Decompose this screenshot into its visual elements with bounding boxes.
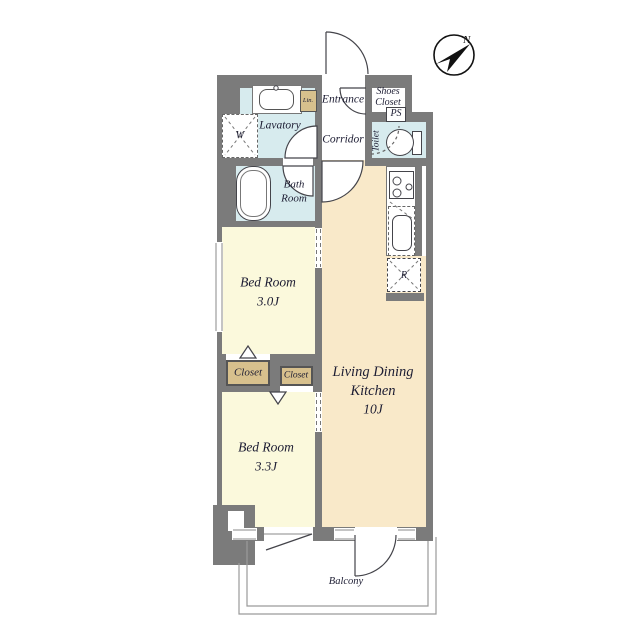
window-bottom-c <box>397 528 416 540</box>
label-fridge: R <box>401 271 407 282</box>
window-bottom-a <box>232 528 257 540</box>
label-bath-1: Bath <box>284 180 305 191</box>
sliding-door-bedroom1 <box>315 228 322 268</box>
label-bedroom1-name: Bed Room <box>240 275 296 289</box>
label-bedroom2-size: 3.3J <box>255 460 277 473</box>
wall-right-outer <box>426 112 433 541</box>
closet-right-opening <box>280 386 313 392</box>
label-corridor: Corridor <box>322 134 364 146</box>
label-ps: PS <box>390 109 401 119</box>
window-bottom-b <box>334 528 355 540</box>
label-lavatory: Lavatory <box>259 120 301 132</box>
window-left <box>215 242 223 332</box>
sliding-door-bedroom2 <box>315 392 322 432</box>
stove <box>389 171 414 199</box>
balcony-door-ldk-opening <box>355 527 397 541</box>
floor-plan: N Entrance Shoes Closet PS Corridor Toil… <box>0 0 640 640</box>
label-ldk-1: Living Dining <box>333 365 414 380</box>
compass-north-label: N <box>462 34 471 46</box>
room-bedroom-3-0 <box>222 227 315 354</box>
label-bath-2: Room <box>281 194 307 205</box>
label-washer: W <box>236 131 245 142</box>
wall-block-top-left <box>217 75 240 114</box>
label-entrance: Entrance <box>322 94 364 106</box>
label-bedroom2-name: Bed Room <box>238 440 294 454</box>
label-closet-left: Closet <box>234 368 262 379</box>
kitchen-window-gap <box>422 166 426 256</box>
entrance-opening <box>322 75 365 88</box>
lavatory-basin <box>259 89 294 110</box>
bath-door-opening <box>283 158 313 166</box>
label-ldk-3: 10J <box>363 402 383 416</box>
label-ldk-2: Kitchen <box>350 384 395 399</box>
kitchen-sink <box>392 215 412 251</box>
balcony-door-bedroom-opening <box>264 527 313 541</box>
entrance-door-arc <box>326 32 368 74</box>
bathtub-inner <box>240 170 267 217</box>
wall-corridor-right <box>365 88 372 166</box>
toilet-bowl <box>386 129 414 156</box>
label-bedroom1-size: 3.0J <box>257 295 279 308</box>
label-closet-right: Closet <box>284 371 308 381</box>
label-toilet: Toilet <box>372 130 382 151</box>
label-balcony: Balcony <box>329 577 363 588</box>
compass-icon: N <box>434 34 474 75</box>
wall-bath-bottom <box>217 221 322 227</box>
label-linen: Lin. <box>303 98 313 105</box>
wall-center-vertical <box>315 85 322 527</box>
ldk-balcony-door-arc <box>355 535 396 576</box>
wall-block-bath-left <box>217 162 236 222</box>
wall-toilet-bottom <box>365 158 433 166</box>
wall-fridge-stub <box>386 293 424 301</box>
label-shoes-closet-1: Shoes <box>376 87 399 97</box>
label-shoes-closet-2: Closet <box>375 98 401 108</box>
